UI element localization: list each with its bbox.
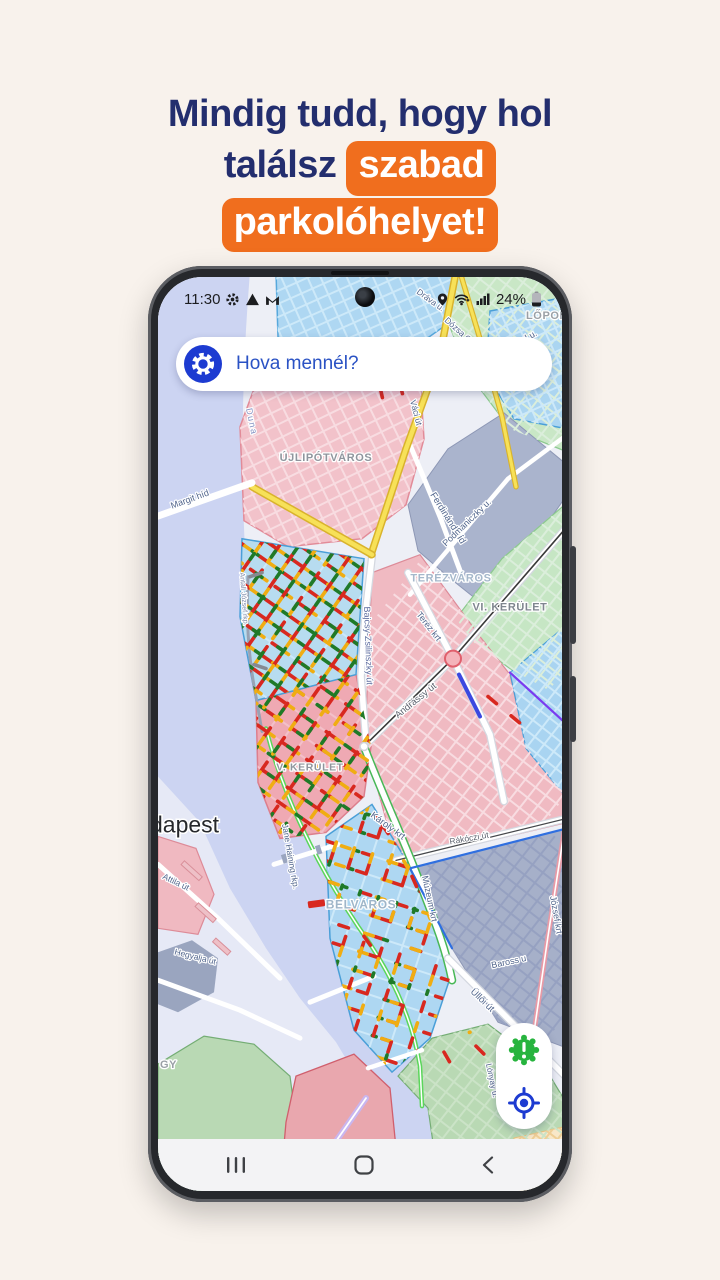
recents-icon[interactable] bbox=[226, 1156, 246, 1174]
battery-percent: 24% bbox=[496, 291, 526, 308]
front-camera bbox=[355, 287, 375, 307]
headline-highlight-parkolohelyet: parkolóhelyet! bbox=[222, 198, 499, 252]
phone-mockup: dapest Duna ÚJLIPÓTVÁROS TERÉZVÁROS VI. … bbox=[148, 266, 572, 1202]
headline-highlight-szabad: szabad bbox=[346, 141, 496, 195]
status-time: 11:30 bbox=[184, 291, 220, 308]
power-button bbox=[570, 676, 576, 742]
home-icon[interactable] bbox=[354, 1155, 374, 1175]
earpiece-speaker bbox=[331, 271, 389, 275]
search-input[interactable]: Hova mennél? bbox=[236, 353, 359, 375]
android-nav-bar bbox=[158, 1139, 562, 1191]
vignette-alert-button[interactable] bbox=[502, 1028, 546, 1072]
crosshair-locate-icon bbox=[508, 1087, 540, 1119]
warning-icon bbox=[245, 292, 260, 307]
volume-button bbox=[570, 546, 576, 644]
phone-screen: dapest Duna ÚJLIPÓTVÁROS TERÉZVÁROS VI. … bbox=[158, 277, 562, 1191]
settings-gear-icon[interactable] bbox=[184, 345, 222, 383]
district-gy: GY bbox=[160, 1059, 177, 1071]
district-terezvaros: TERÉZVÁROS bbox=[410, 572, 491, 585]
headline-line1: Mindig tudd, hogy hol bbox=[0, 90, 720, 139]
gmail-icon bbox=[265, 292, 280, 307]
headline-line2: találsz szabad bbox=[0, 141, 720, 195]
signal-bars-icon bbox=[476, 292, 491, 306]
headline-line3: parkolóhelyet! bbox=[0, 198, 720, 252]
gear-icon bbox=[225, 292, 240, 307]
district-belvaros: BELVÁROS bbox=[326, 896, 397, 911]
district-vi-kerulet: VI. KERÜLET bbox=[473, 601, 548, 614]
oktogon-junction bbox=[445, 651, 461, 667]
badge-exclamation-icon bbox=[507, 1033, 541, 1067]
locate-button[interactable] bbox=[502, 1081, 546, 1125]
deak-junction bbox=[360, 742, 368, 750]
promo-page: { "page": {"background": "#f8f2ec"}, "he… bbox=[0, 0, 720, 1280]
fab-pill bbox=[496, 1023, 552, 1129]
location-pin-icon bbox=[436, 292, 449, 307]
battery-icon bbox=[531, 291, 542, 307]
headline: Mindig tudd, hogy hol találsz szabad par… bbox=[0, 0, 720, 252]
city-label: dapest bbox=[158, 811, 220, 837]
district-v-kerulet: V. KERÜLET bbox=[276, 760, 343, 773]
wifi-icon bbox=[454, 292, 471, 306]
headline-line2-plain: találsz bbox=[224, 144, 337, 186]
district-ujlipotvaros: ÚJLIPÓTVÁROS bbox=[280, 451, 373, 464]
search-bar[interactable]: Hova mennél? bbox=[176, 337, 552, 391]
back-icon[interactable] bbox=[482, 1156, 494, 1174]
